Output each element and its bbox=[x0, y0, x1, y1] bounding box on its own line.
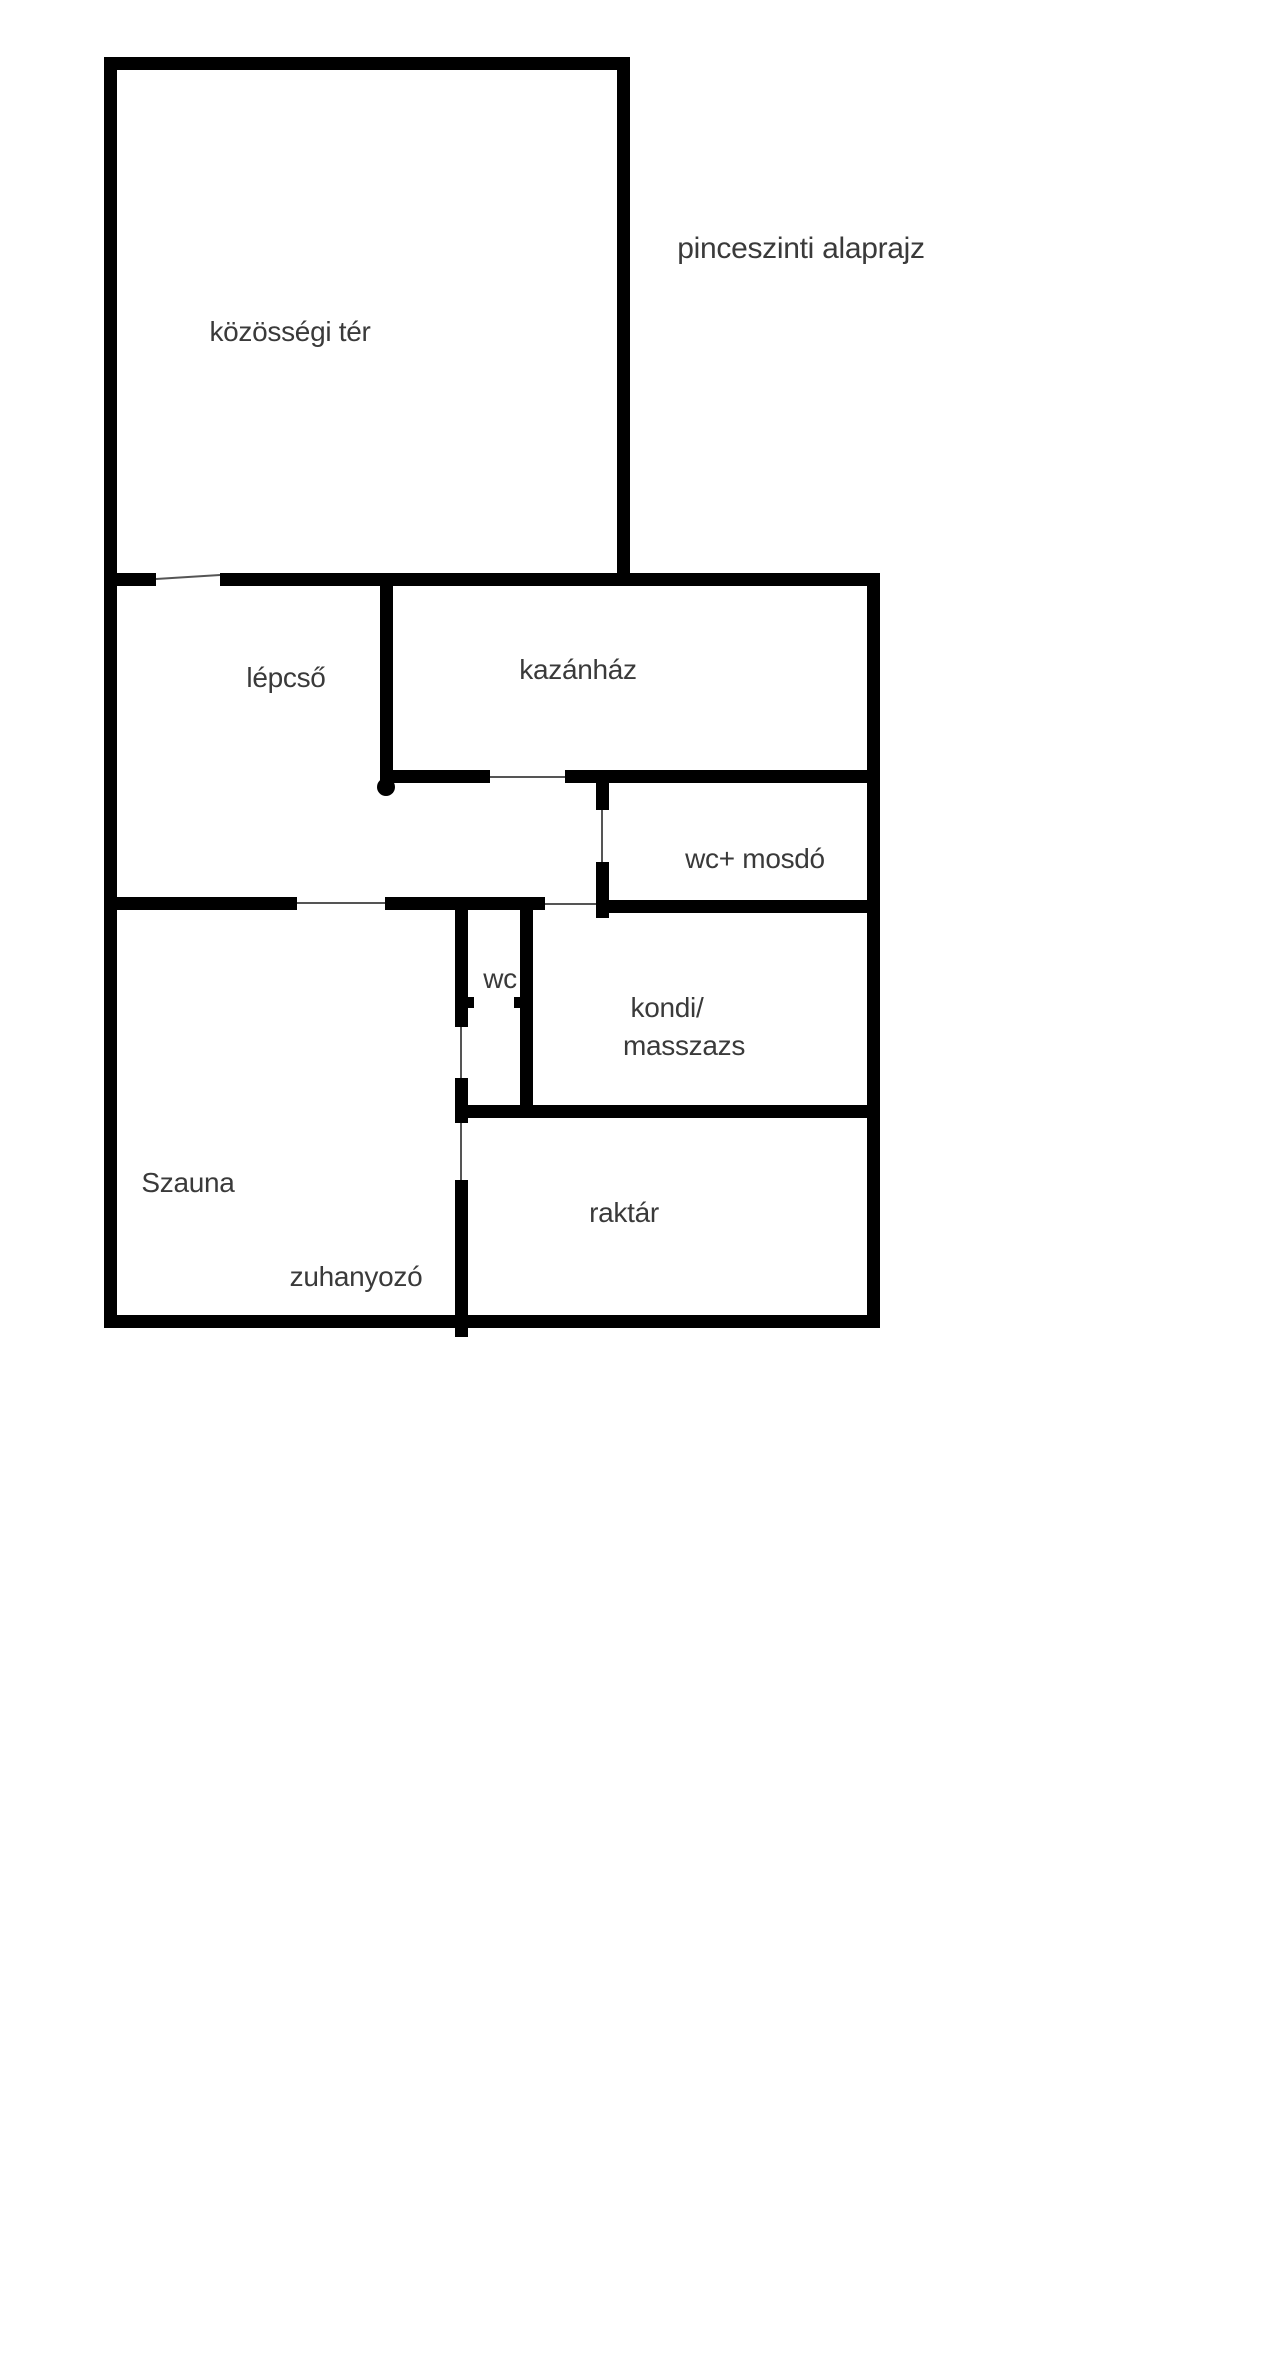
wall-wcmosdo-left-a bbox=[596, 783, 609, 810]
room-label-zuhanyozo: zuhanyozó bbox=[290, 1261, 423, 1292]
wall-wcmosdo-bottom bbox=[596, 900, 867, 913]
wall-kazanhaz-bottom-a bbox=[380, 770, 490, 783]
wall-outer-right bbox=[867, 573, 880, 1328]
floor-plan-page: pinceszinti alaprajz közösségi tér lépcs… bbox=[0, 0, 1280, 2367]
wall-bigroom-top bbox=[104, 57, 630, 70]
wall-wc-door-stub-left bbox=[455, 997, 474, 1008]
wall-szauna-raktar bbox=[455, 1180, 468, 1337]
room-label-masszazs: masszazs bbox=[623, 1030, 745, 1061]
room-label-raktar: raktár bbox=[589, 1197, 659, 1228]
wall-wc-right bbox=[520, 904, 533, 1118]
wall-outer-left bbox=[104, 57, 117, 1328]
wall-lepcso-kazanhaz bbox=[380, 586, 393, 793]
wall-corridor-bottom-a bbox=[117, 897, 297, 910]
wall-section-top-left bbox=[104, 573, 156, 586]
wall-bigroom-right bbox=[617, 57, 630, 586]
wall-wc-left-upper bbox=[455, 904, 468, 1027]
wall-outer-bottom bbox=[104, 1315, 880, 1328]
labels: pinceszinti alaprajz közösségi tér lépcs… bbox=[141, 232, 924, 1292]
room-label-wc: wc bbox=[482, 963, 517, 994]
room-label-kozossegi-ter: közösségi tér bbox=[209, 316, 370, 347]
wall-wc-door-stub-right bbox=[514, 997, 533, 1008]
room-label-kazanhaz: kazánház bbox=[519, 654, 636, 685]
wall-section-top-main bbox=[220, 573, 880, 586]
room-label-szauna: Szauna bbox=[141, 1167, 235, 1198]
wall-kazanhaz-bottom-b bbox=[565, 770, 867, 783]
plan-title: pinceszinti alaprajz bbox=[677, 232, 924, 265]
room-label-wc-mosdo: wc+ mosdó bbox=[684, 843, 825, 874]
basement-floor-plan: pinceszinti alaprajz közösségi tér lépcs… bbox=[0, 0, 1280, 2367]
room-label-kondi: kondi/ bbox=[631, 992, 704, 1023]
door-kozossegi-lepcso bbox=[156, 575, 220, 579]
room-label-lepcso: lépcső bbox=[246, 662, 325, 693]
wall-raktar-top bbox=[455, 1105, 867, 1118]
